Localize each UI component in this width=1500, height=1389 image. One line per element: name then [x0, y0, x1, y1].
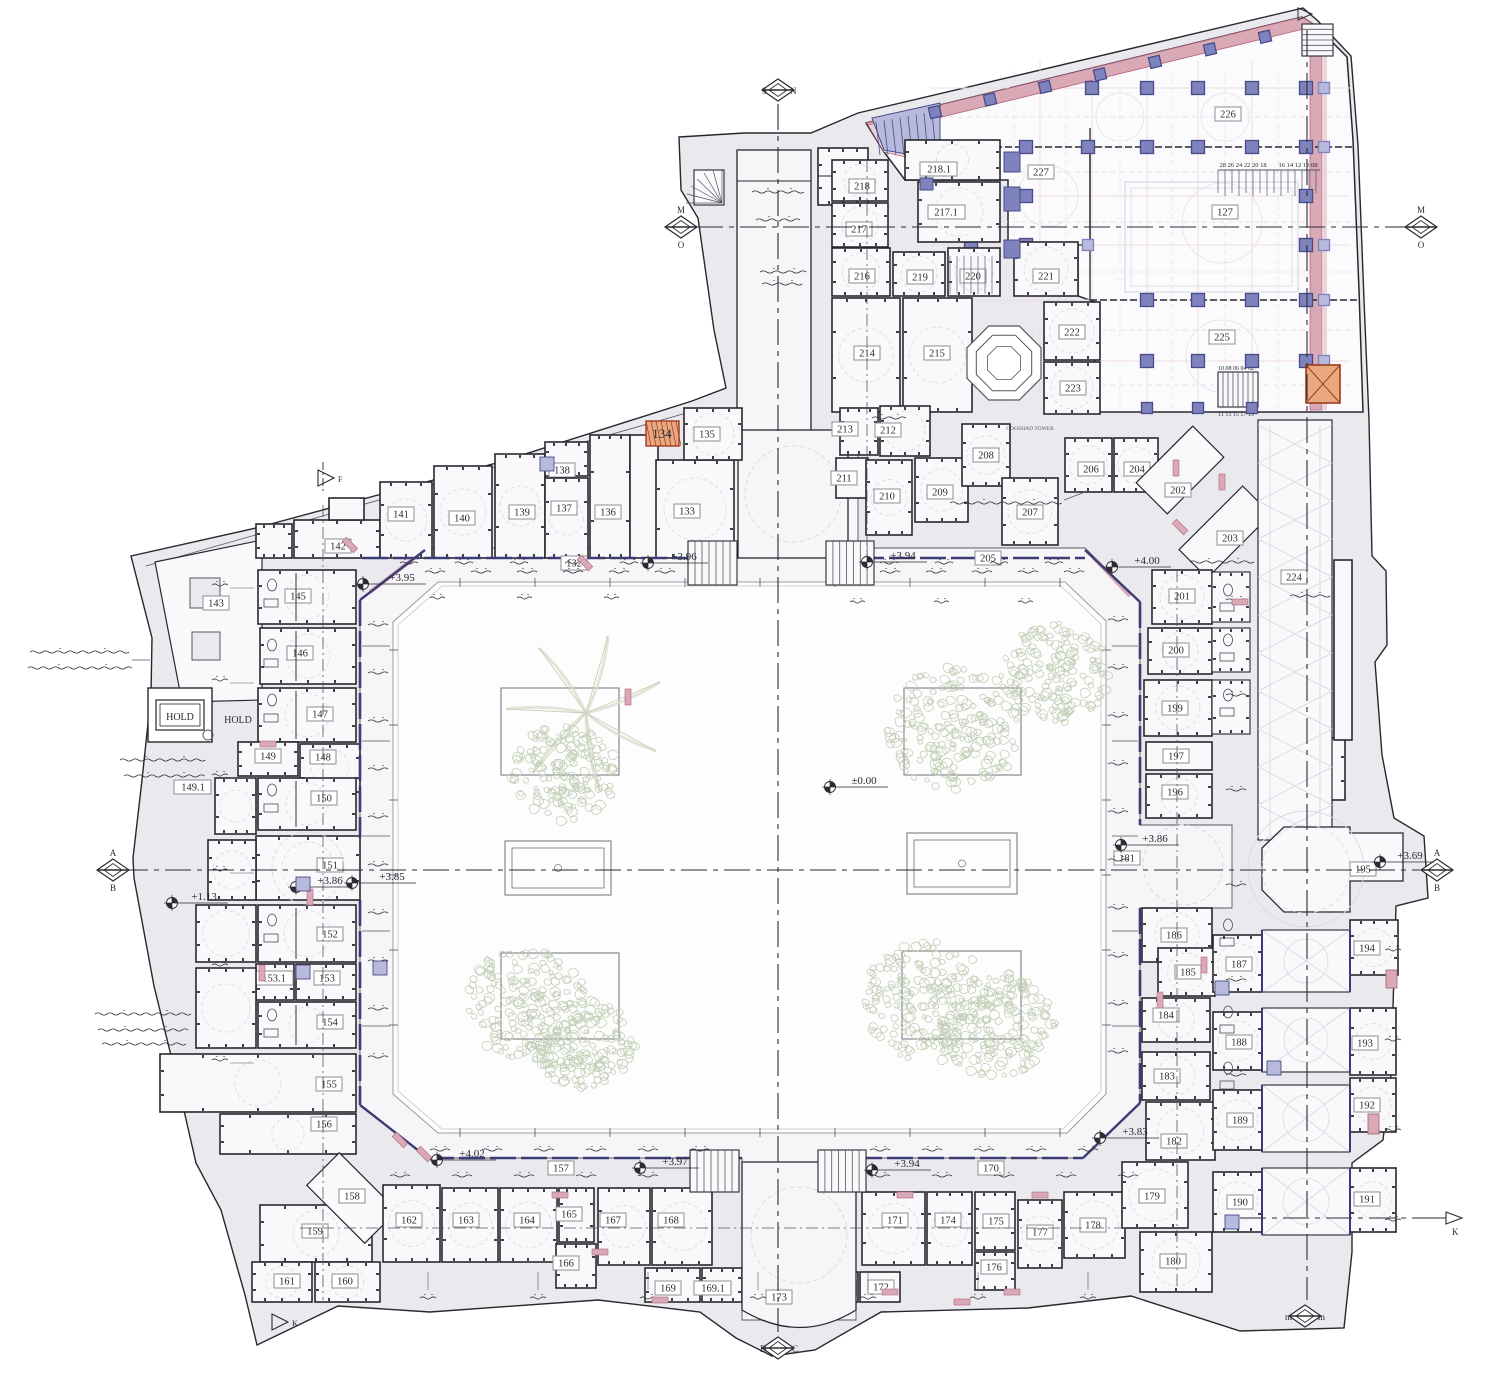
svg-text:149: 149: [260, 752, 276, 763]
svg-text:153.1: 153.1: [262, 974, 286, 985]
svg-text:206: 206: [1083, 465, 1099, 476]
svg-text:+3.94: +3.94: [890, 550, 916, 562]
svg-text:HOLD: HOLD: [224, 715, 252, 726]
svg-text:194: 194: [1359, 944, 1376, 955]
svg-text:A: A: [1434, 848, 1441, 858]
svg-text:213: 213: [837, 425, 853, 436]
svg-text:+3.96: +3.96: [671, 551, 697, 563]
svg-text:209: 209: [932, 488, 948, 499]
svg-text:153: 153: [319, 974, 335, 985]
svg-text:212: 212: [880, 426, 896, 437]
svg-text:158: 158: [344, 1192, 360, 1203]
svg-text:168: 168: [663, 1216, 679, 1227]
svg-text:154: 154: [322, 1018, 339, 1029]
svg-text:171: 171: [887, 1216, 903, 1227]
svg-text:193: 193: [1357, 1039, 1373, 1050]
svg-text:S: S: [762, 86, 767, 96]
svg-text:221: 221: [1038, 272, 1054, 283]
svg-text:162: 162: [401, 1216, 417, 1227]
svg-text:218: 218: [854, 182, 870, 193]
svg-text:M: M: [677, 205, 685, 215]
svg-text:204: 204: [1129, 465, 1146, 476]
svg-text:185: 185: [1180, 968, 1196, 979]
svg-text:A: A: [110, 848, 117, 858]
svg-text:216: 216: [854, 272, 870, 283]
svg-text:+1.13: +1.13: [191, 891, 217, 903]
svg-text:+3.86: +3.86: [317, 875, 343, 887]
svg-text:187: 187: [1231, 960, 1247, 971]
svg-text:HOLD: HOLD: [166, 712, 194, 723]
svg-text:+3.85: +3.85: [379, 871, 405, 883]
svg-text:134: 134: [652, 426, 672, 441]
svg-text:201: 201: [1174, 592, 1190, 603]
svg-text:141: 141: [393, 510, 409, 521]
svg-text:222: 222: [1064, 328, 1080, 339]
svg-text:142: 142: [330, 542, 346, 553]
svg-text:m: m: [1318, 1312, 1325, 1322]
svg-text:178: 178: [1085, 1221, 1101, 1232]
svg-text:202: 202: [1170, 486, 1186, 497]
svg-text:M: M: [1417, 205, 1425, 215]
svg-text:F: F: [338, 475, 343, 484]
svg-text:165: 165: [561, 1210, 577, 1221]
svg-text:150: 150: [316, 794, 332, 805]
svg-text:16 14 12 10 08: 16 14 12 10 08: [1279, 162, 1318, 169]
svg-text:138: 138: [554, 466, 570, 477]
svg-text:146: 146: [292, 649, 308, 660]
svg-text:225: 225: [1214, 333, 1230, 344]
svg-text:180: 180: [1165, 1257, 1181, 1268]
svg-text:192: 192: [1359, 1101, 1375, 1112]
svg-text:175: 175: [988, 1217, 1004, 1228]
svg-text:K: K: [1452, 1227, 1459, 1237]
svg-text:+3.97: +3.97: [662, 1156, 688, 1168]
svg-text:145: 145: [290, 592, 306, 603]
svg-text:133: 133: [679, 507, 695, 518]
svg-text:156: 156: [316, 1120, 332, 1131]
svg-text:199: 199: [1167, 704, 1183, 715]
svg-text:127: 127: [1217, 208, 1233, 219]
svg-text:C: C: [792, 1344, 798, 1354]
svg-text:137: 137: [556, 504, 572, 515]
svg-text:188: 188: [1231, 1038, 1247, 1049]
svg-text:155: 155: [321, 1080, 337, 1091]
svg-text:166: 166: [558, 1259, 574, 1270]
svg-text:208: 208: [978, 451, 994, 462]
svg-text:152: 152: [322, 930, 338, 941]
svg-text:167: 167: [605, 1216, 621, 1227]
svg-text:B: B: [1434, 883, 1440, 893]
svg-text:136: 136: [600, 508, 616, 519]
svg-text:O: O: [678, 240, 685, 250]
svg-text:170: 170: [983, 1164, 999, 1175]
svg-text:+3.86: +3.86: [1142, 833, 1168, 845]
svg-text:163: 163: [458, 1216, 474, 1227]
svg-text:+3.94: +3.94: [894, 1158, 920, 1170]
svg-text:191: 191: [1359, 1195, 1375, 1206]
svg-text:211: 211: [836, 474, 851, 485]
svg-text:205: 205: [980, 554, 996, 565]
svg-text:160: 160: [337, 1277, 353, 1288]
svg-text:203: 203: [1222, 534, 1238, 545]
svg-text:218.1: 218.1: [927, 165, 951, 176]
svg-text:186: 186: [1166, 931, 1182, 942]
svg-text:217.1: 217.1: [934, 208, 958, 219]
svg-text:28 26 24 22 20 18: 28 26 24 22 20 18: [1219, 162, 1266, 169]
svg-text:196: 196: [1167, 788, 1183, 799]
svg-text:D: D: [760, 1344, 767, 1354]
svg-text:±0.00: ±0.00: [851, 775, 877, 787]
svg-text:224: 224: [1286, 573, 1303, 584]
svg-text:+4.00: +4.00: [1134, 555, 1160, 567]
svg-text:217: 217: [851, 225, 867, 236]
svg-text:183: 183: [1159, 1072, 1175, 1083]
svg-text:215: 215: [929, 349, 945, 360]
svg-text:190: 190: [1232, 1198, 1248, 1209]
svg-text:207: 207: [1022, 508, 1038, 519]
svg-text:210: 210: [879, 492, 895, 503]
svg-text:169: 169: [660, 1284, 676, 1295]
svg-text:214: 214: [859, 349, 876, 360]
svg-text:227: 227: [1033, 168, 1049, 179]
svg-text:174: 174: [940, 1216, 957, 1227]
svg-text:149.1: 149.1: [181, 783, 205, 794]
svg-text:169.1: 169.1: [701, 1284, 725, 1295]
svg-text:157: 157: [553, 1164, 569, 1175]
svg-text:143: 143: [208, 599, 224, 610]
svg-text:161: 161: [279, 1277, 295, 1288]
svg-text:223: 223: [1065, 384, 1081, 395]
svg-text:140: 140: [454, 514, 470, 525]
svg-text:226: 226: [1220, 110, 1236, 121]
svg-text:B: B: [110, 883, 116, 893]
svg-text:+3.83: +3.83: [1122, 1126, 1148, 1138]
svg-text:+3.95: +3.95: [389, 572, 415, 584]
svg-text:177: 177: [1032, 1228, 1048, 1239]
svg-text:179: 179: [1144, 1192, 1160, 1203]
svg-text:164: 164: [519, 1216, 536, 1227]
svg-text:182: 182: [1166, 1137, 1182, 1148]
svg-text:+4.02: +4.02: [459, 1148, 484, 1160]
svg-text:173: 173: [771, 1293, 787, 1304]
svg-text:N: N: [790, 86, 797, 96]
svg-text:197: 197: [1168, 752, 1184, 763]
svg-text:184: 184: [1158, 1011, 1175, 1022]
svg-text:189: 189: [1232, 1116, 1248, 1127]
svg-text:m: m: [1285, 1312, 1292, 1322]
svg-text:220: 220: [965, 272, 981, 283]
svg-text:GOOSHAD TOWER: GOOSHAD TOWER: [1006, 426, 1054, 432]
svg-text:135: 135: [699, 430, 715, 441]
svg-text:200: 200: [1168, 646, 1184, 657]
svg-text:+3.69: +3.69: [1397, 850, 1423, 862]
svg-text:K: K: [292, 1319, 298, 1328]
svg-text:139: 139: [514, 508, 530, 519]
svg-text:176: 176: [986, 1263, 1002, 1274]
svg-text:O: O: [1418, 240, 1425, 250]
svg-text:219: 219: [912, 273, 928, 284]
svg-text:147: 147: [312, 710, 328, 721]
